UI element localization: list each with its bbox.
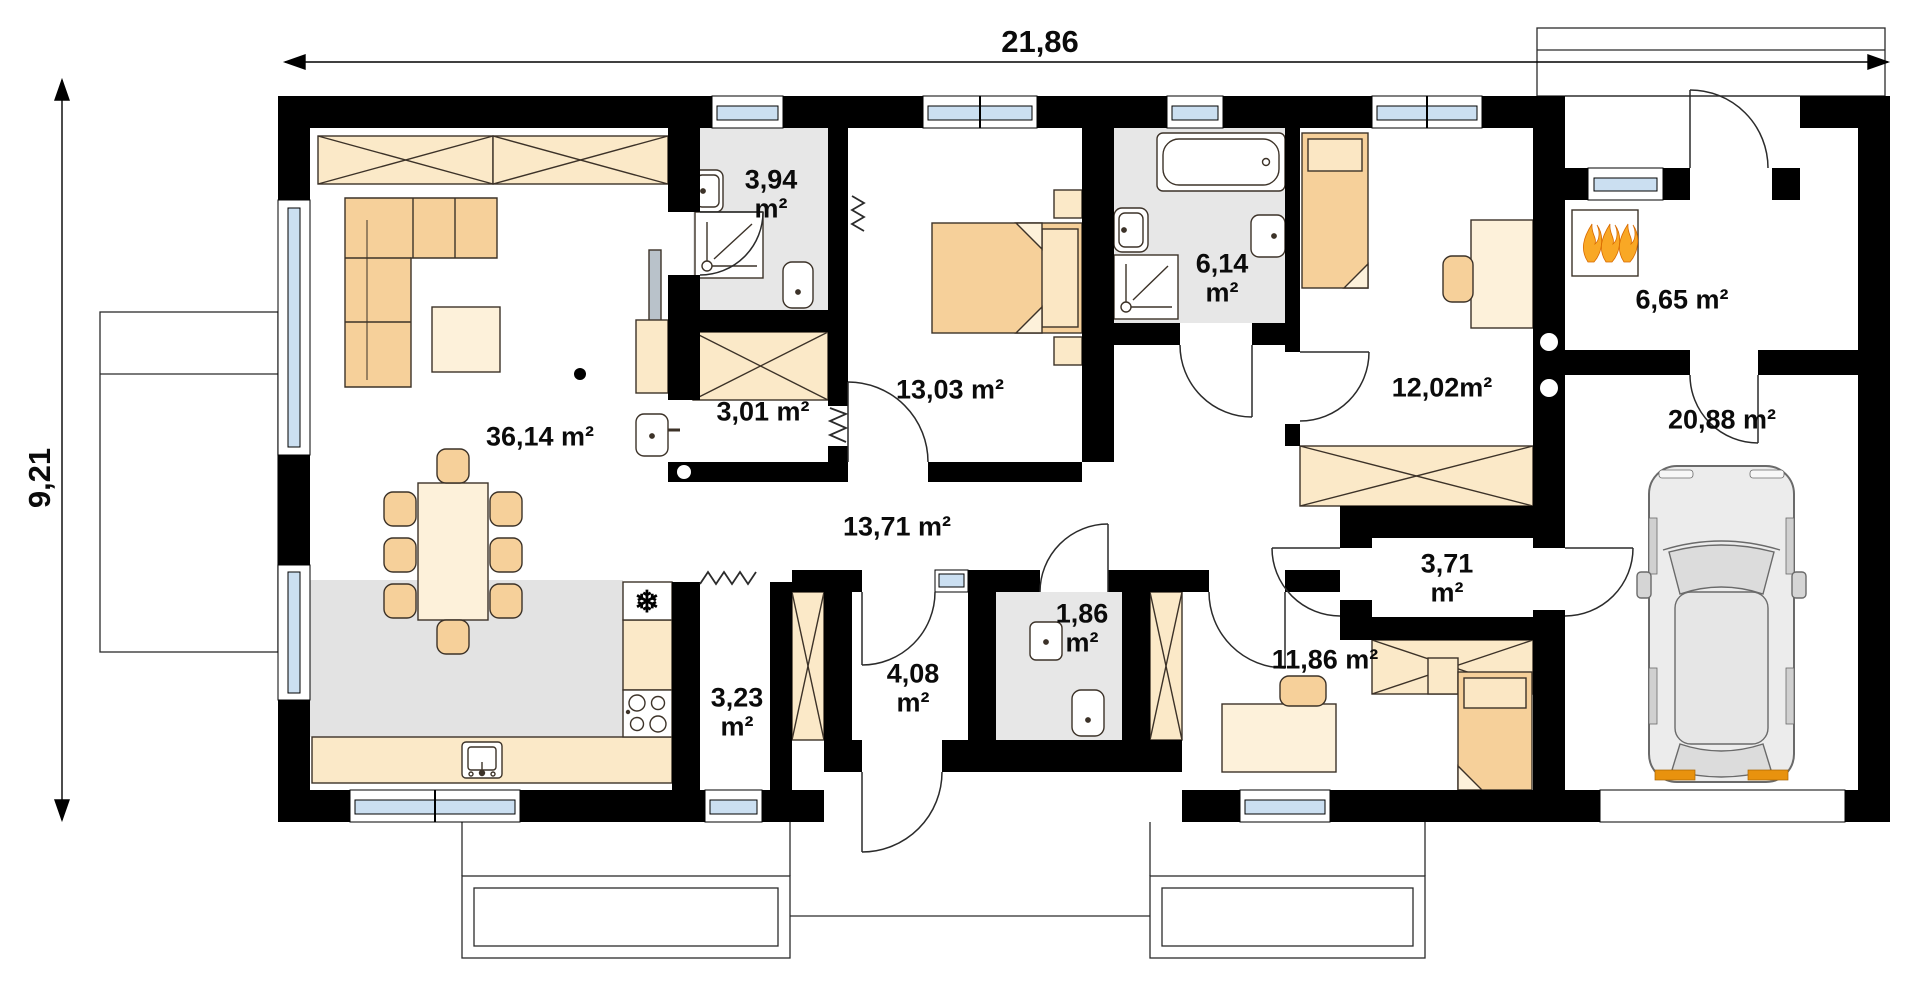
window-bedroom2: [1372, 96, 1482, 128]
closet-left-of-vestibule: [792, 592, 824, 740]
kitchen-sink: [462, 742, 502, 778]
window-bath-small: [712, 96, 783, 128]
chair-bedroom2: [1443, 256, 1473, 302]
taillight-right: [1748, 770, 1788, 780]
room-label-bathroom-main: 6,14 m²: [1196, 249, 1249, 306]
kitchen-counter-right: [623, 620, 672, 690]
dimension-height-label: 9,21: [22, 448, 58, 508]
desk-bedroom2: [1471, 220, 1533, 328]
chair-bedroom3: [1280, 676, 1326, 706]
wardrobe-hall-entry: [693, 332, 828, 400]
room-label-bedroom-1: 13,03 m²: [896, 376, 1004, 405]
window-bedroom1: [923, 96, 1037, 128]
room-label-bathroom-small: 3,94 m²: [745, 165, 798, 222]
room-label-bedroom-2: 12,02m²: [1392, 374, 1493, 403]
floor-plan-canvas: ❄ 21,86 9,21 36,14 m² 3,94 m² 3,01 m² 13…: [0, 0, 1920, 985]
window-pantry: [705, 790, 762, 822]
desk-bedroom3: [1222, 704, 1336, 772]
room-label-hall-entry: 3,01 m²: [716, 398, 809, 427]
fireplace-icon: [1572, 210, 1638, 276]
sink-bath-main-left: [1114, 208, 1148, 252]
wardrobe-living-2: [493, 136, 668, 184]
window-porch: [1588, 168, 1663, 200]
fridge-snowflake-icon: ❄: [634, 586, 659, 619]
room-label-wc: 1,86 m²: [1056, 599, 1109, 656]
room-label-living-dining: 36,14 m²: [486, 423, 594, 452]
terrace-left: [100, 312, 278, 652]
room-label-hall-garage: 3,71 m²: [1421, 549, 1474, 606]
window-living-left-2: [278, 565, 310, 700]
window-bedroom3: [1240, 790, 1330, 822]
floor-plan-drawing: ❄: [0, 0, 1920, 985]
wardrobe-bedroom-2: [1300, 446, 1533, 506]
nightstand-2: [1054, 337, 1082, 365]
window-bath-main: [1167, 96, 1223, 128]
room-label-corridor: 13,71 m²: [843, 513, 951, 542]
bed-single-bedroom2: [1302, 133, 1368, 288]
nightstand-1: [1054, 190, 1082, 218]
room-label-garage: 20,88 m²: [1668, 406, 1776, 435]
shower-bath-main: [1114, 255, 1178, 319]
room-label-pantry: 3,23 m²: [711, 683, 764, 740]
dining-table: [418, 483, 488, 620]
bathtub: [1157, 133, 1285, 191]
coffee-table: [432, 307, 500, 372]
window-terrace-door: [350, 790, 520, 822]
window-sidelight-vestibule: [935, 570, 968, 592]
toilet-wc: [1072, 690, 1104, 736]
closet-right-of-wc: [1150, 592, 1182, 740]
wardrobe-living-1: [318, 136, 493, 184]
tv-cabinet: [636, 320, 668, 393]
toilet-bath-small: [783, 262, 813, 308]
room-label-boiler-room: 6,65 m²: [1635, 286, 1728, 315]
nightstand-3: [1428, 658, 1458, 694]
room-label-vestibule: 4,08 m²: [887, 659, 940, 716]
sink-bath-main-right: [1251, 215, 1285, 257]
window-living-left-1: [278, 200, 310, 455]
bed-single-bedroom3: [1458, 672, 1532, 790]
stove: [623, 690, 672, 737]
garage-door-opening: [1600, 790, 1845, 822]
room-label-bedroom-3: 11,86 m²: [1272, 646, 1379, 675]
taillight-left: [1655, 770, 1695, 780]
car: [1637, 466, 1806, 782]
dimension-width-label: 21,86: [1001, 24, 1079, 60]
porch-steps: [462, 822, 1425, 958]
bed-double: [932, 223, 1082, 333]
